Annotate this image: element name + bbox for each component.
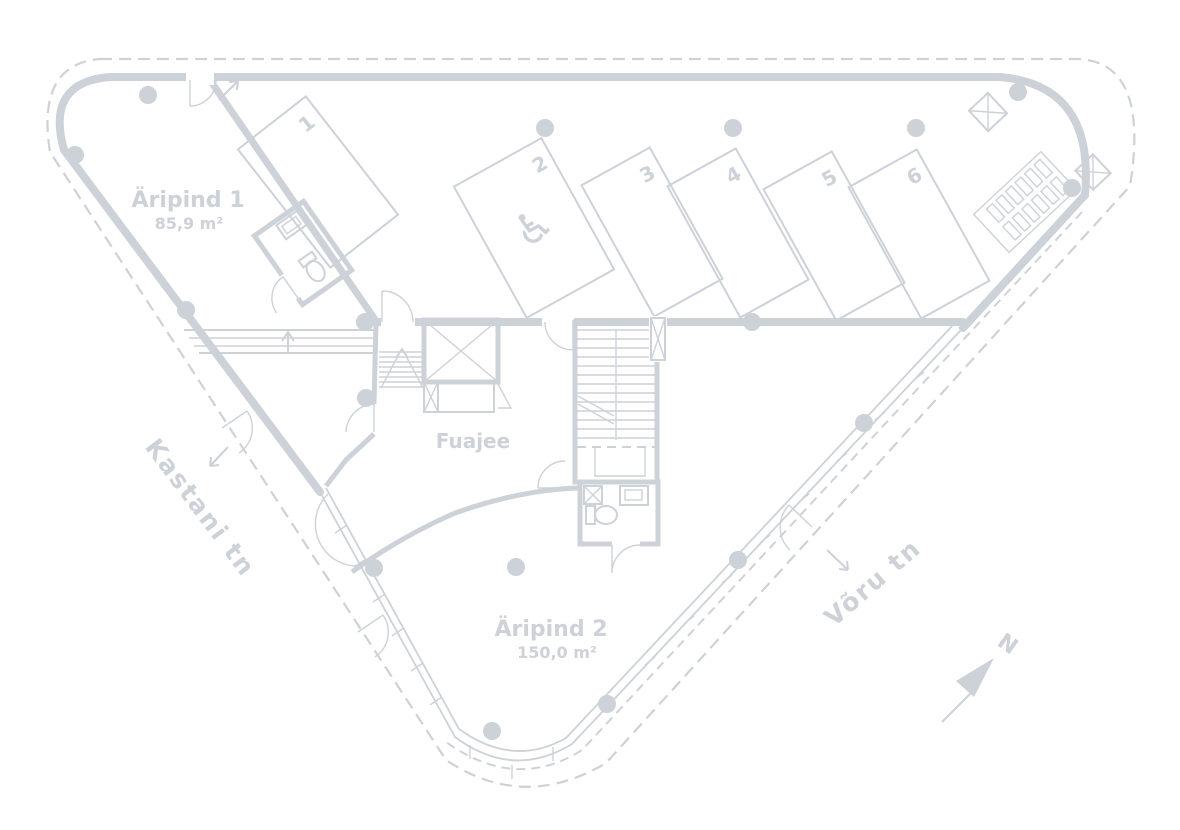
column-dot bbox=[855, 414, 873, 432]
bike-rack-icon bbox=[974, 152, 1077, 253]
parking-number-1: 1 bbox=[294, 110, 320, 137]
parking-number-5: 5 bbox=[817, 164, 841, 192]
column-dot bbox=[507, 558, 525, 576]
column-dot bbox=[1009, 83, 1027, 101]
column-dot bbox=[139, 86, 157, 104]
parking-number-2: 2 bbox=[528, 150, 552, 178]
ramp-arrow-icon bbox=[282, 332, 294, 352]
room2-name: Äripind 2 bbox=[494, 616, 607, 642]
parking-space-6: 6 bbox=[849, 149, 990, 318]
wc-door-arc bbox=[612, 545, 640, 573]
floor-plan: 1 2 ♿ 3 4 5 6 bbox=[0, 0, 1180, 830]
column-dot bbox=[598, 695, 616, 713]
column-dot bbox=[356, 313, 374, 331]
glazing-mullions bbox=[335, 372, 924, 779]
parking-number-6: 6 bbox=[902, 162, 926, 190]
shaft-columns bbox=[649, 316, 667, 362]
room2-area: 150,0 m² bbox=[517, 643, 597, 662]
door-lobby-room2 bbox=[538, 461, 565, 488]
column-dot bbox=[483, 722, 501, 740]
door-kastani-lower bbox=[358, 615, 388, 657]
stairs-small-icon bbox=[379, 349, 425, 388]
room1-name: Äripind 1 bbox=[131, 187, 244, 213]
exit-arrow-icon bbox=[219, 81, 238, 100]
room1-area: 85,9 m² bbox=[155, 214, 224, 233]
column-box-icon bbox=[969, 93, 1007, 131]
shaft-box-icon bbox=[649, 316, 667, 362]
exit-arrow-icon bbox=[827, 550, 848, 570]
column-dot bbox=[536, 119, 554, 137]
elevator-icon bbox=[424, 320, 511, 412]
column-dot bbox=[743, 313, 761, 331]
parking-number-3: 3 bbox=[635, 160, 659, 188]
column-dot bbox=[365, 559, 383, 577]
parking-number-4: 4 bbox=[721, 161, 745, 189]
parking-space-3: 3 bbox=[582, 147, 723, 316]
street-label-voru: Võru tn bbox=[819, 533, 927, 632]
column-box-icon bbox=[1075, 154, 1110, 189]
column-dot bbox=[177, 301, 195, 319]
wc-room bbox=[580, 482, 658, 573]
toilet-icon bbox=[586, 506, 617, 524]
column-dot bbox=[907, 119, 925, 137]
stairs-main-icon bbox=[575, 322, 657, 482]
lobby-curved-wall bbox=[352, 488, 578, 572]
exit-arrow-icon bbox=[210, 447, 228, 466]
column-dot bbox=[357, 389, 375, 407]
door-kastani-upper bbox=[210, 411, 252, 466]
column-dot bbox=[724, 119, 742, 137]
column-dot bbox=[66, 146, 84, 164]
column-dot bbox=[729, 551, 747, 569]
north-label: N bbox=[993, 629, 1022, 660]
lobby-name: Fuajee bbox=[436, 429, 510, 453]
sink-icon bbox=[620, 486, 648, 505]
street-label-kastani: Kastani tn bbox=[139, 433, 261, 582]
parking-space-2: 2 ♿ bbox=[454, 138, 614, 318]
toilet-icon bbox=[299, 252, 329, 285]
north-arrow-icon: N bbox=[942, 629, 1022, 722]
wheelchair-icon: ♿ bbox=[504, 196, 563, 260]
